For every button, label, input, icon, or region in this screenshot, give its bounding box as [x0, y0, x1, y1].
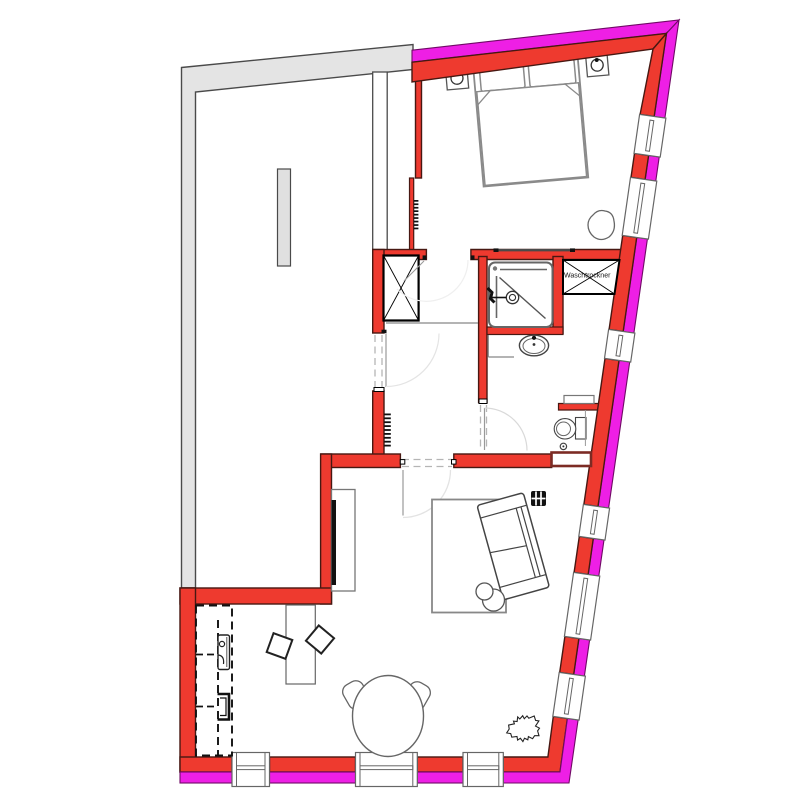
svg-text:Waschtrockner: Waschtrockner — [564, 273, 611, 280]
